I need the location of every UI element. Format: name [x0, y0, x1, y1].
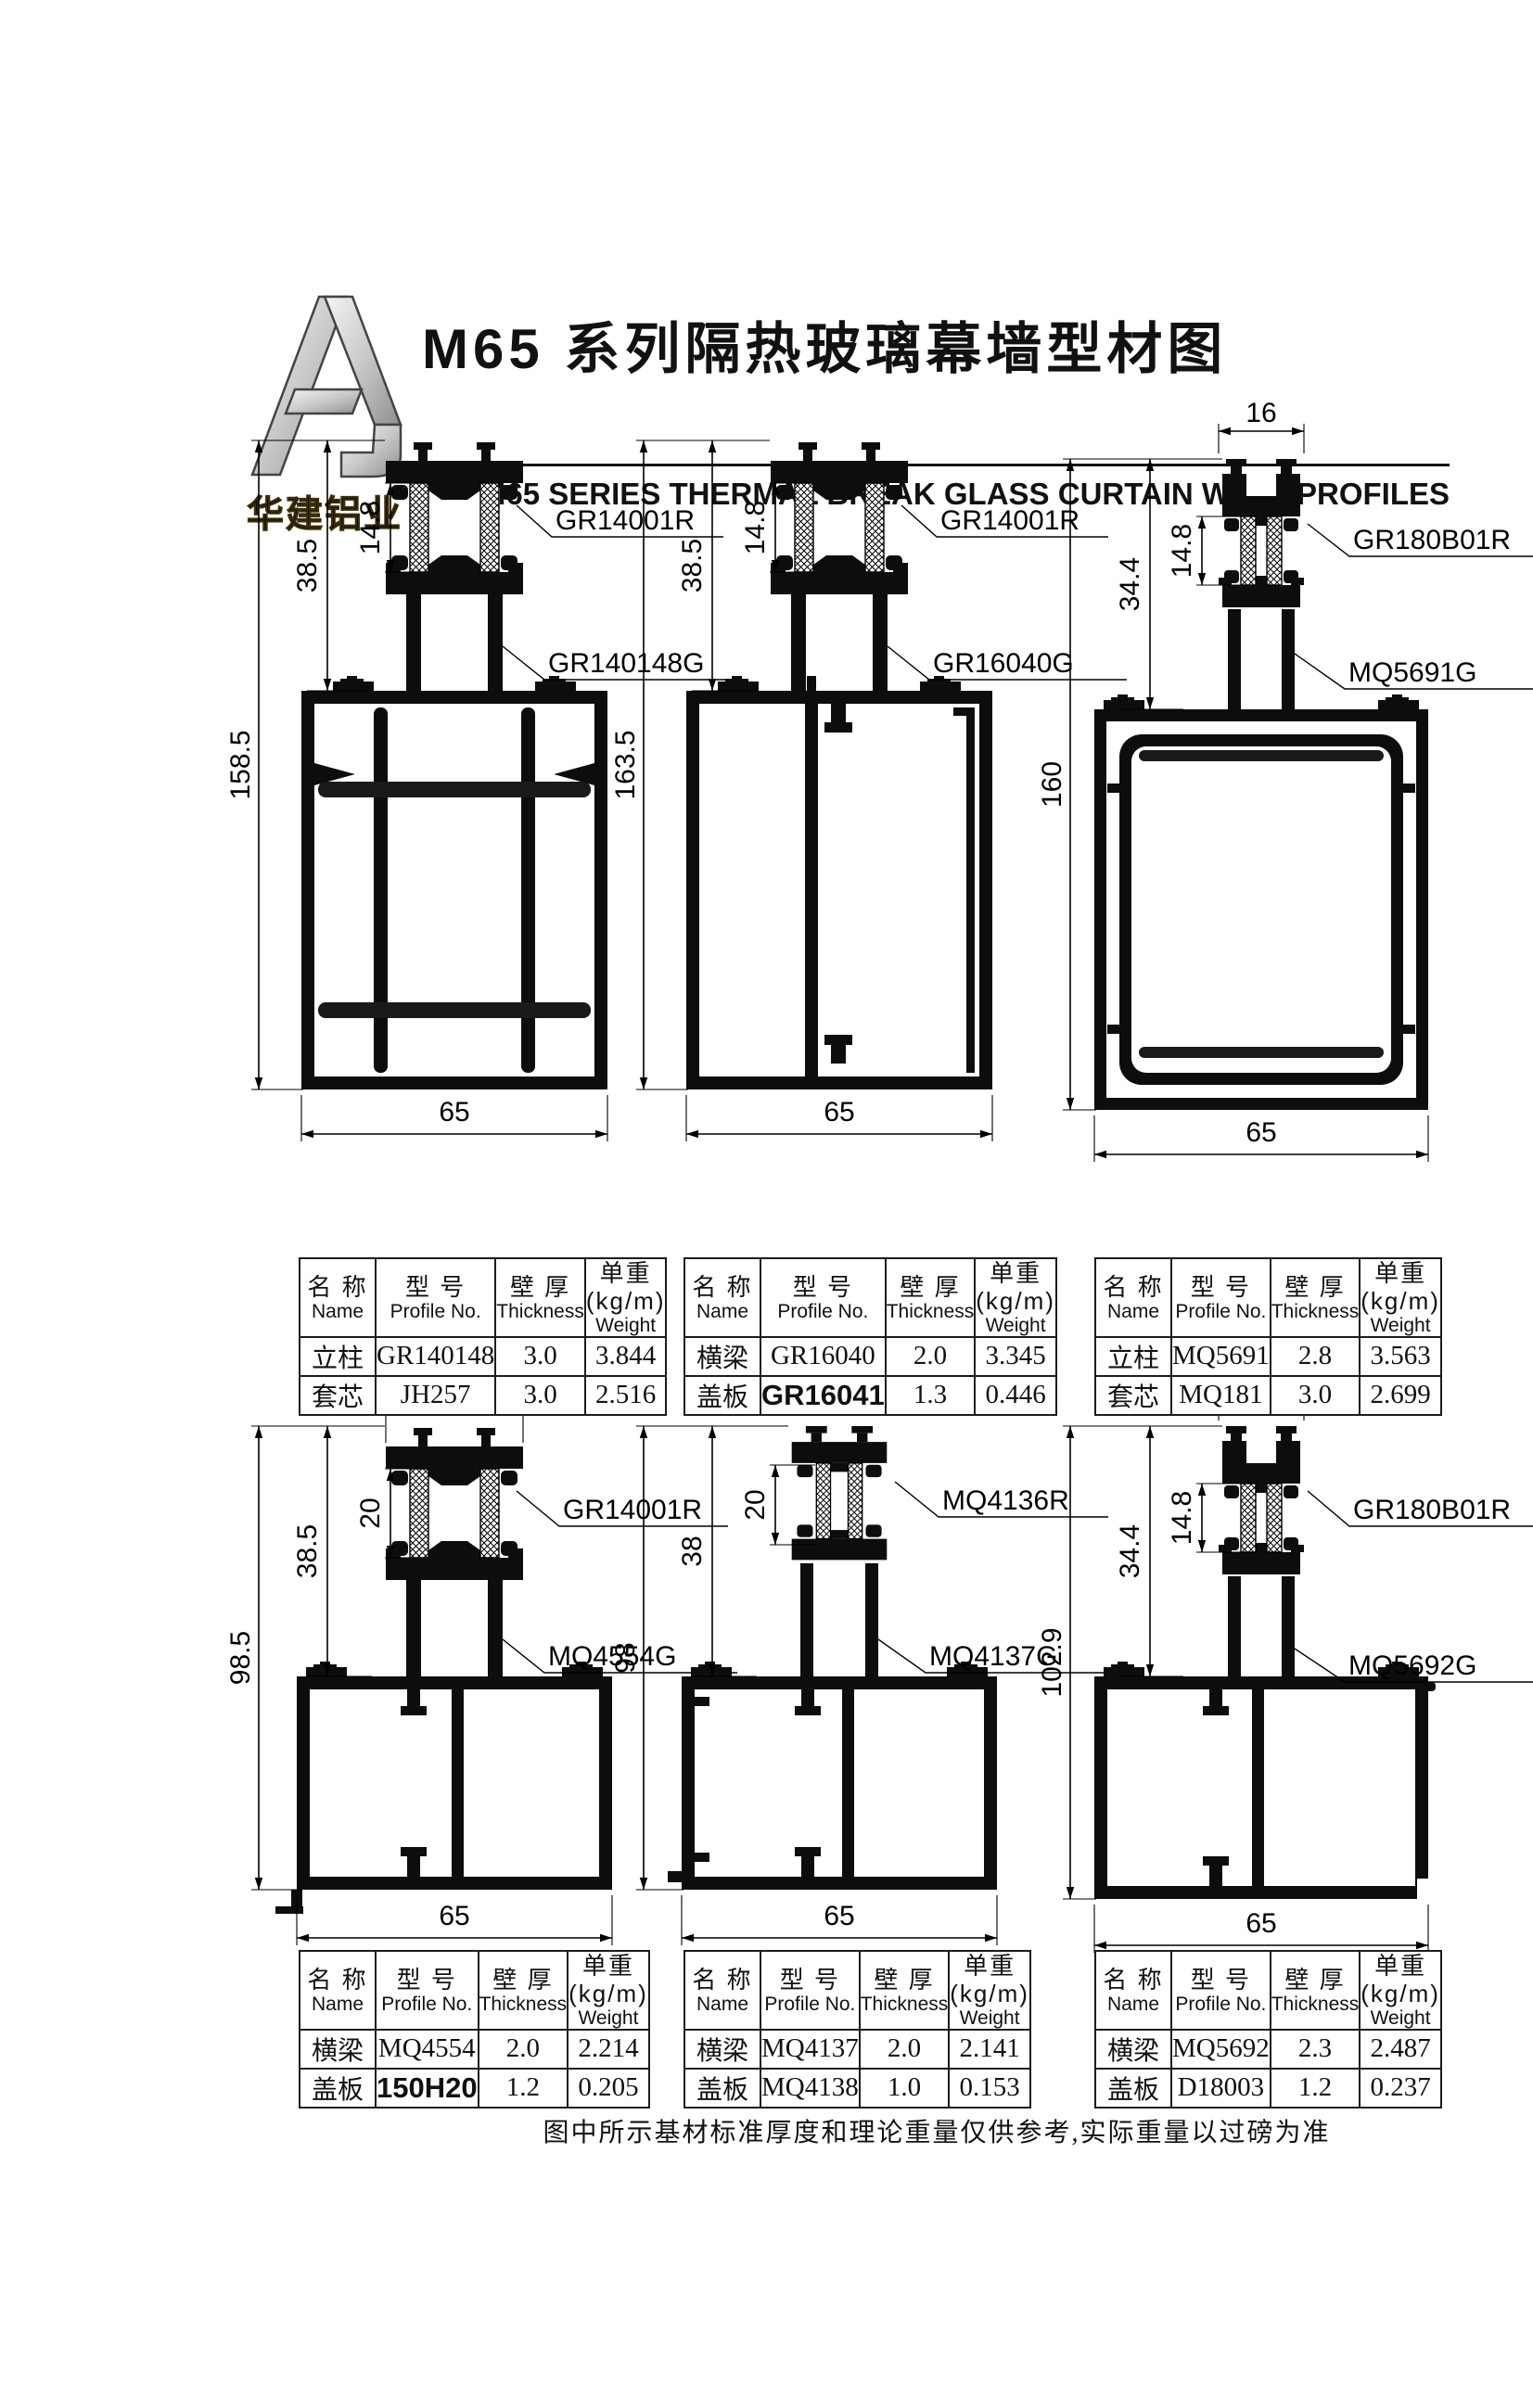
spec-table-3: 名 称Name 型 号Profile No. 壁 厚Thickness 单重(k…	[1094, 1257, 1442, 1416]
profile-label: GR180B01R	[1353, 525, 1511, 555]
table-header-row: 名 称Name 型 号Profile No. 壁 厚Thickness 单重(k…	[300, 1258, 666, 1337]
table-row: 横梁 MQ4554 2.0 2.214	[300, 2030, 649, 2069]
profile-drawing-6: 16 102.9 34.4 14.8 65 GR180B01R MQ5692G	[1029, 1370, 1493, 1973]
dimension-label-iso: 14.8	[355, 501, 386, 554]
dimension-label-capwidth: 16	[1246, 398, 1276, 428]
dimension-label-cap: 34.4	[1115, 1524, 1145, 1578]
profile-label: GR180B01R	[1353, 1495, 1511, 1525]
profile-label: MQ5691G	[1348, 657, 1476, 688]
table-row: 套芯 JH257 3.0 2.516	[300, 1376, 666, 1415]
dimension-label-total: 98.5	[225, 1631, 256, 1685]
dimension-label-cap: 38	[677, 1535, 708, 1566]
dimension-label-width: 65	[439, 1097, 469, 1128]
table-row: 盖板 MQ4138 1.0 0.153	[684, 2069, 1030, 2108]
profile-drawing-1: 158.5 38.5 14.8 65 GR14001R GR140148G	[218, 413, 663, 1182]
table-header-row: 名 称Name 型 号Profile No. 壁 厚Thickness 单重(k…	[1095, 1258, 1441, 1337]
profile-label: MQ5692G	[1348, 1650, 1476, 1681]
spec-table-1: 名 称Name 型 号Profile No. 壁 厚Thickness 单重(k…	[299, 1257, 667, 1416]
profile-drawing-5: 98 38 20 65 MQ4136R MQ4137G	[603, 1370, 1048, 1968]
spec-table-6: 名 称Name 型 号Profile No. 壁 厚Thickness 单重(k…	[1094, 1950, 1442, 2109]
dimension-label-total: 163.5	[610, 730, 641, 799]
dimension-label-total: 158.5	[225, 730, 256, 799]
dimension-label-width: 65	[439, 1901, 469, 1931]
spec-table-2: 名 称Name 型 号Profile No. 壁 厚Thickness 单重(k…	[683, 1257, 1057, 1416]
dimension-label-iso: 14.8	[740, 501, 771, 554]
table-row: 盖板 GR16041 1.3 0.446	[684, 1376, 1056, 1415]
profile-drawing-3: 16 160 34.4 14.8 65 GR180B01R MQ5691G	[1029, 403, 1493, 1201]
dimension-label-cap: 38.5	[292, 539, 323, 592]
dimension-label-cap: 38.5	[292, 1524, 323, 1578]
table-row: 盖板 D18003 1.2 0.237	[1095, 2069, 1441, 2108]
dimension-label-total: 160	[1037, 761, 1067, 808]
footer-note: 图中所示基材标准厚度和理论重量仅供参考,实际重量以过磅为准	[501, 2112, 1373, 2149]
dimension-label-iso: 20	[355, 1497, 386, 1528]
dimension-label-cap: 38.5	[677, 539, 708, 592]
dimension-label-width: 65	[824, 1097, 854, 1128]
dimension-label-iso: 14.8	[1167, 1491, 1197, 1545]
dimension-label-total: 98	[610, 1642, 641, 1673]
dimension-label-total: 102.9	[1037, 1627, 1067, 1697]
table-header-row: 名 称Name 型 号Profile No. 壁 厚Thickness 单重(k…	[684, 1258, 1056, 1337]
dimension-label-width: 65	[824, 1901, 854, 1931]
table-row: 套芯 MQ181 3.0 2.699	[1095, 1376, 1441, 1415]
table-header-row: 名 称Name 型 号Profile No. 壁 厚Thickness 单重(k…	[300, 1951, 649, 2030]
dimension-label-width: 65	[1246, 1908, 1276, 1939]
table-header-row: 名 称Name 型 号Profile No. 壁 厚Thickness 单重(k…	[684, 1951, 1030, 2030]
table-row: 立柱 MQ5691 2.8 3.563	[1095, 1337, 1441, 1376]
dimension-label-width: 65	[1246, 1117, 1276, 1148]
spec-table-5: 名 称Name 型 号Profile No. 壁 厚Thickness 单重(k…	[683, 1950, 1031, 2109]
dimension-label-iso: 20	[740, 1489, 771, 1520]
table-row: 盖板 150H20 1.2 0.205	[300, 2069, 649, 2108]
dimension-label-cap: 34.4	[1115, 557, 1145, 611]
spec-table-4: 名 称Name 型 号Profile No. 壁 厚Thickness 单重(k…	[299, 1950, 650, 2109]
page: 华建铝业 M65 系列隔热玻璃幕墙型材图 M65 SERIES THERMAL …	[0, 0, 1533, 2408]
profile-drawing-4: 21 98.5 38.5 20 65 GR14001R MQ4554G	[218, 1370, 663, 1968]
table-row: 立柱 GR140148 3.0 3.844	[300, 1337, 666, 1376]
table-header-row: 名 称Name 型 号Profile No. 壁 厚Thickness 单重(k…	[1095, 1951, 1441, 2030]
table-row: 横梁 MQ5692 2.3 2.487	[1095, 2030, 1441, 2069]
dimension-label-iso: 14.8	[1167, 524, 1197, 578]
table-row: 横梁 GR16040 2.0 3.345	[684, 1337, 1056, 1376]
page-title: M65 系列隔热玻璃幕墙型材图	[422, 304, 1227, 385]
table-row: 横梁 MQ4137 2.0 2.141	[684, 2030, 1030, 2069]
profile-drawing-2: 163.5 38.5 14.8 65 GR14001R GR16040G	[603, 413, 1048, 1182]
